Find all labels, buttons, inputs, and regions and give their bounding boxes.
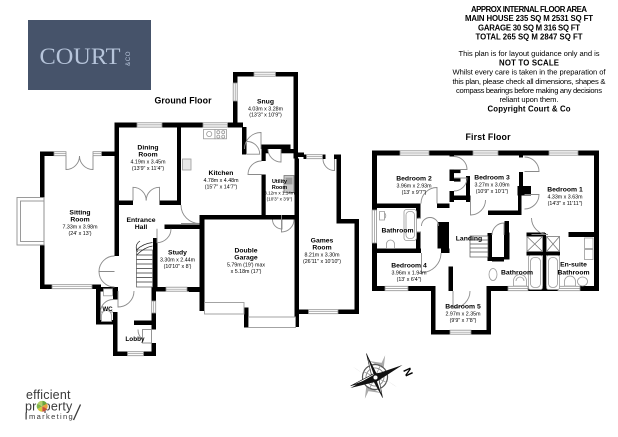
svg-text:Lobby: Lobby: [125, 336, 145, 343]
svg-text:3.96m x 2.93m: 3.96m x 2.93m: [396, 184, 432, 190]
svg-text:Hall: Hall: [135, 224, 148, 231]
svg-text:Bathroom: Bathroom: [557, 270, 589, 277]
svg-text:3.30m x 2.44m: 3.30m x 2.44m: [160, 258, 196, 264]
svg-text:(13'3" x 10'9"): (13'3" x 10'9"): [249, 113, 282, 119]
svg-text:MAIN HOUSE 235 SQ M 2531 SQ FT: MAIN HOUSE 235 SQ M 2531 SQ FT: [465, 14, 593, 23]
svg-text:Whilst every care is taken in: Whilst every care is taken in the prepar…: [453, 68, 607, 77]
svg-text:(24' x 13'): (24' x 13'): [69, 231, 92, 237]
svg-text:marketing: marketing: [29, 412, 74, 421]
svg-text:(10'10" x 8'): (10'10" x 8'): [164, 264, 192, 270]
svg-text:4.03m x 3.28m: 4.03m x 3.28m: [248, 106, 284, 112]
svg-text:TOTAL 265 SQ M 2847 SQ FT: TOTAL 265 SQ M 2847 SQ FT: [476, 33, 583, 42]
svg-text:Copyright Court & Co: Copyright Court & Co: [488, 104, 571, 113]
svg-text:Snug: Snug: [257, 99, 274, 106]
svg-text:(15'7" x 14'7"): (15'7" x 14'7"): [205, 184, 238, 190]
svg-text:x 5.18m (17'): x 5.18m (17'): [231, 269, 262, 275]
svg-text:This plan is for layout guidan: This plan is for layout guidance only an…: [459, 49, 600, 58]
svg-text:First Floor: First Floor: [466, 132, 512, 142]
svg-text:(9'9" x 7'8"): (9'9" x 7'8"): [450, 318, 477, 324]
svg-text:GARAGE 30 SQ M 316 SQ FT: GARAGE 30 SQ M 316 SQ FT: [478, 23, 580, 32]
svg-text:(13' x 9'7"): (13' x 9'7"): [402, 190, 427, 196]
svg-text:NOT TO SCALE: NOT TO SCALE: [499, 58, 559, 67]
svg-text:8.21m x 3.30m: 8.21m x 3.30m: [304, 253, 340, 259]
svg-text:Games: Games: [311, 238, 334, 245]
svg-text:Landing: Landing: [456, 236, 482, 243]
svg-text:APPROX INTERNAL FLOOR AREA: APPROX INTERNAL FLOOR AREA: [471, 5, 587, 14]
svg-text:Bedroom 2: Bedroom 2: [396, 176, 432, 183]
svg-text:COURT: COURT: [40, 44, 121, 69]
svg-text:Room: Room: [138, 152, 157, 159]
svg-text:4.78m x 4.48m: 4.78m x 4.48m: [203, 178, 239, 184]
svg-text:Ground Floor: Ground Floor: [155, 96, 213, 106]
svg-text:Bedroom 4: Bedroom 4: [391, 263, 427, 270]
svg-text:Bedroom 3: Bedroom 3: [474, 175, 510, 182]
svg-text:reliant upon them.: reliant upon them.: [500, 95, 559, 104]
svg-text:(10'3" x 3'9"): (10'3" x 3'9"): [267, 197, 293, 202]
svg-text:(13'9" x 11'4"): (13'9" x 11'4"): [132, 166, 164, 172]
svg-text:(10'9" x 10'1"): (10'9" x 10'1"): [476, 189, 509, 195]
svg-text:Sitting: Sitting: [69, 210, 90, 217]
svg-text:Room: Room: [312, 245, 331, 252]
svg-text:(14'3" x 11'11"): (14'3" x 11'11"): [548, 201, 583, 207]
svg-text:3.96m x 1.94m: 3.96m x 1.94m: [391, 271, 427, 277]
svg-text:Bathroom: Bathroom: [381, 228, 413, 235]
svg-text:Kitchen: Kitchen: [209, 170, 234, 177]
svg-text:Bathroom: Bathroom: [501, 270, 533, 277]
svg-text:compass bearings before making: compass bearings before making any decis…: [456, 86, 602, 95]
svg-text:3.27m x 3.09m: 3.27m x 3.09m: [474, 183, 510, 189]
svg-text:WC: WC: [102, 306, 113, 313]
svg-text:Double: Double: [234, 248, 257, 255]
svg-text:Entrance: Entrance: [126, 217, 155, 224]
svg-text:Dining: Dining: [137, 145, 158, 152]
svg-text:5.79m (19') max: 5.79m (19') max: [227, 263, 265, 269]
svg-text:Study: Study: [168, 250, 187, 257]
svg-text:4.19m x 3.45m: 4.19m x 3.45m: [130, 160, 166, 166]
svg-text:(26'11" x 10'10"): (26'11" x 10'10"): [303, 259, 341, 265]
svg-text:Bedroom 1: Bedroom 1: [547, 187, 583, 194]
svg-text:4.33m x 3.63m: 4.33m x 3.63m: [547, 195, 583, 201]
svg-text:7.33m x 3.98m: 7.33m x 3.98m: [62, 225, 98, 231]
svg-text:3.12m x 1.14m: 3.12m x 1.14m: [264, 191, 295, 196]
svg-text:Bedroom 5: Bedroom 5: [445, 304, 481, 311]
svg-text:En-suite: En-suite: [560, 262, 587, 269]
svg-text:&CO: &CO: [125, 51, 132, 66]
svg-text:Garage: Garage: [234, 255, 258, 262]
svg-text:Room: Room: [70, 217, 89, 224]
svg-text:this plan, please check all di: this plan, please check all dimensions, …: [453, 77, 606, 86]
svg-text:(13' x 6'4"): (13' x 6'4"): [397, 277, 422, 283]
svg-text:2.97m x 2.35m: 2.97m x 2.35m: [445, 312, 481, 318]
